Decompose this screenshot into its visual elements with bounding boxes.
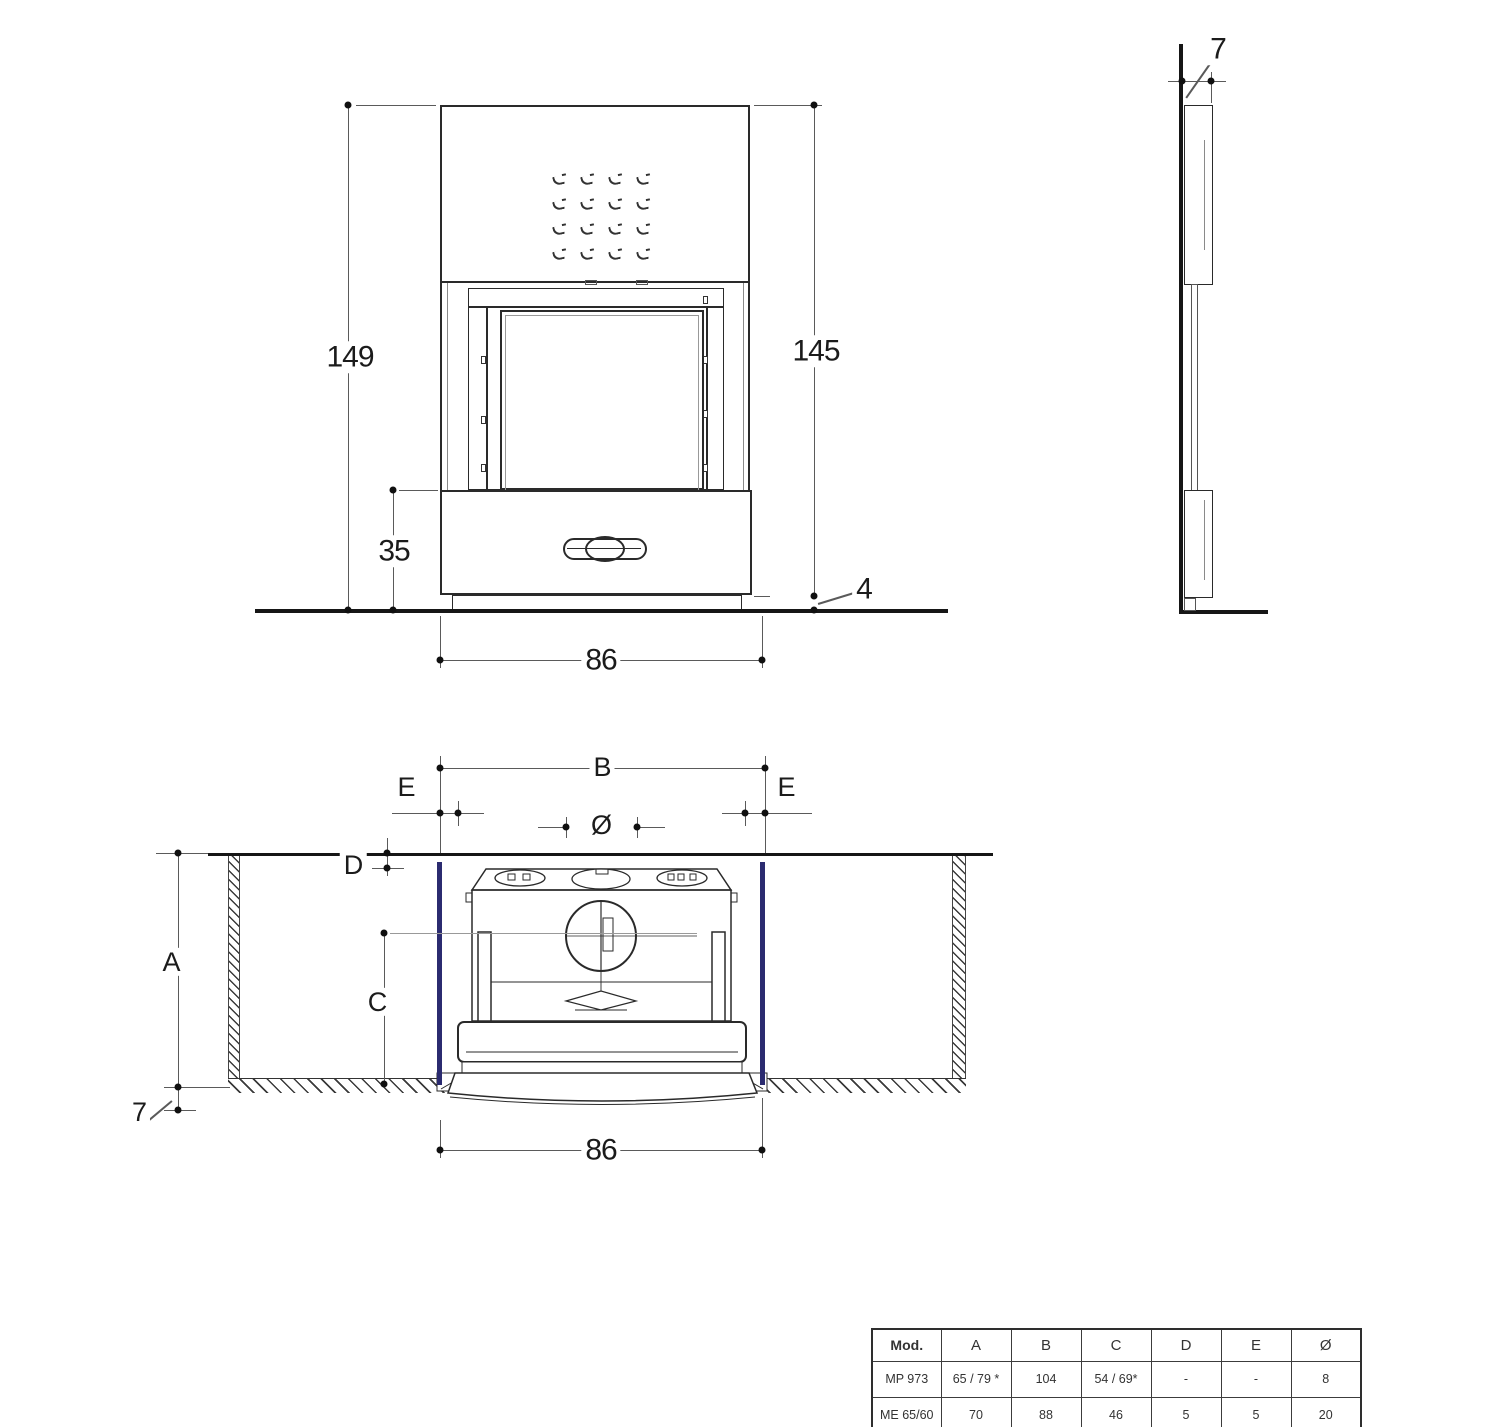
dim-145-ext-bottom: [754, 596, 770, 597]
spec-value-cell: 20: [1291, 1397, 1361, 1427]
hinge-mark: [481, 416, 486, 424]
dim-endpoint: [384, 865, 391, 872]
dim-endpoint: [563, 824, 570, 831]
top-vent-left: [495, 870, 545, 886]
spec-value-cell: 5: [1151, 1397, 1221, 1427]
vent-slot-icon: [636, 175, 649, 186]
side-upper-panel-inner: [1204, 140, 1205, 250]
dim-E-right-label: E: [773, 773, 798, 801]
dim-A-label: A: [158, 948, 183, 976]
spec-value-cell: -: [1151, 1361, 1221, 1397]
base-band: [458, 1022, 746, 1062]
dim-B-label: B: [589, 753, 614, 781]
spec-value-cell: 70: [941, 1397, 1011, 1427]
handle-knob: [585, 536, 625, 562]
dim-endpoint: [811, 593, 818, 600]
hinge-mark: [703, 296, 708, 304]
spec-value-cell: 65 / 79 *: [941, 1361, 1011, 1397]
dim-E-left-label: E: [393, 773, 418, 801]
vent-slot-icon: [580, 200, 593, 211]
spec-table-header-cell: A: [941, 1329, 1011, 1361]
dim-base-height-label: 35: [374, 535, 413, 567]
dim-diameter-label: Ø: [587, 811, 615, 839]
spec-table-header-cell: D: [1151, 1329, 1221, 1361]
dim-149-ext: [356, 105, 436, 106]
dim-35-ext: [399, 490, 438, 491]
dim-depth-label: 7: [1206, 33, 1230, 65]
wall-top-line: [208, 853, 993, 856]
flue-collar: [572, 869, 630, 889]
vent-slot-icon: [636, 250, 649, 261]
spec-table: Mod.ABCDEØ MP 97365 / 79 *10454 / 69*--8…: [871, 1328, 1362, 1427]
dim-endpoint: [1179, 78, 1186, 85]
dim-endpoint: [634, 824, 641, 831]
niche-marker-left: [437, 862, 442, 1085]
spec-value-cell: 5: [1221, 1397, 1291, 1427]
fireplace-technical-drawing: 149 35 145 4 86: [0, 0, 1500, 1427]
spec-table-header-cell: B: [1011, 1329, 1081, 1361]
vent-slot-icon: [636, 225, 649, 236]
body-side-right-inner: [743, 283, 744, 490]
dim-body-height-label: 145: [788, 335, 843, 367]
side-foot: [1184, 598, 1196, 611]
door-column-right: [706, 306, 708, 490]
top-vent-right: [657, 870, 707, 886]
vent-slot-icon: [608, 250, 621, 261]
door-frame-top-band: [468, 306, 724, 308]
spec-table-header-cell: C: [1081, 1329, 1151, 1361]
rail-right: [712, 932, 725, 1021]
vent-slot-icon: [580, 175, 593, 186]
handle-axis: [567, 548, 641, 549]
pedestal-skirt: [448, 1073, 757, 1101]
rail-left: [478, 932, 491, 1021]
dim-endpoint: [759, 657, 766, 664]
vent-slot-icon: [636, 200, 649, 211]
side-connector: [1191, 284, 1198, 491]
vent-slot-icon: [580, 250, 593, 261]
pedestal-band: [462, 1062, 742, 1073]
dim-floor-drop-label: 7: [128, 1098, 150, 1126]
spec-table-header-cell: Ø: [1291, 1329, 1361, 1361]
body-side-left-inner: [447, 283, 448, 490]
hinge-mark: [481, 356, 486, 364]
spec-model-cell: ME 65/60: [872, 1397, 941, 1427]
dim-endpoint: [811, 607, 818, 614]
spec-table-body: MP 97365 / 79 *10454 / 69*--8ME 65/60708…: [872, 1361, 1361, 1427]
dim-diam-line-right: [637, 827, 665, 828]
dim-overall-height-label: 149: [322, 341, 377, 373]
dim-endpoint: [742, 810, 749, 817]
vent-slot-icon: [608, 175, 621, 186]
dim-endpoint: [437, 765, 444, 772]
glass-inner-line: [505, 315, 699, 490]
vent-slot-icon: [552, 175, 565, 186]
dim-floor-gap-label: 4: [852, 573, 876, 605]
dim-endpoint: [381, 930, 388, 937]
side-lower-panel: [1184, 490, 1213, 598]
dim-D-label: D: [340, 851, 367, 879]
side-tab: [731, 893, 737, 902]
vent-grid: [553, 176, 663, 271]
body-side-right: [748, 283, 750, 490]
vent-slot-icon: [608, 200, 621, 211]
vent-slot-icon: [552, 225, 565, 236]
dim-width-label: 86: [581, 644, 620, 676]
hood-mark-right: [636, 280, 648, 285]
dim-insert-width-label: 86: [581, 1134, 620, 1166]
dim-endpoint: [381, 1081, 388, 1088]
spec-value-cell: 8: [1291, 1361, 1361, 1397]
dim-4-leader: [818, 592, 855, 605]
plinth: [452, 595, 742, 610]
dim-endpoint: [345, 607, 352, 614]
vent-slot-icon: [580, 225, 593, 236]
dim-endpoint: [437, 1147, 444, 1154]
spec-value-cell: 46: [1081, 1397, 1151, 1427]
vent-slot-icon: [608, 225, 621, 236]
spec-value-cell: 104: [1011, 1361, 1081, 1397]
body-side-left: [440, 283, 442, 490]
dim-C-ref-line: [390, 933, 697, 934]
side-upper-panel: [1184, 105, 1213, 285]
dim-endpoint: [390, 607, 397, 614]
hood-mark-left: [585, 280, 597, 285]
niche-left-wall: [228, 853, 240, 1078]
vent-slot-icon: [552, 200, 565, 211]
dim-endpoint: [1208, 78, 1215, 85]
spec-model-cell: MP 973: [872, 1361, 941, 1397]
niche-right-wall: [952, 853, 966, 1078]
dim-endpoint: [175, 1084, 182, 1091]
side-tab: [466, 893, 472, 902]
dim-endpoint: [762, 765, 769, 772]
spec-value-cell: 54 / 69*: [1081, 1361, 1151, 1397]
dim-C-label: C: [364, 988, 391, 1016]
floor-line: [255, 609, 948, 613]
dim-endpoint: [175, 1107, 182, 1114]
dim-endpoint: [759, 1147, 766, 1154]
dim-A-ext-top: [156, 853, 208, 854]
wall-line: [1179, 44, 1183, 613]
spec-table-head: Mod.ABCDEØ: [872, 1329, 1361, 1361]
spec-table-row: ME 65/607088465520: [872, 1397, 1361, 1427]
dim-endpoint: [384, 850, 391, 857]
spec-table-row: MP 97365 / 79 *10454 / 69*--8: [872, 1361, 1361, 1397]
dim-A-line: [178, 853, 179, 1110]
dim-endpoint: [811, 102, 818, 109]
niche-marker-right: [760, 862, 765, 1085]
spec-table-header-cell: E: [1221, 1329, 1291, 1361]
dim-endpoint: [455, 810, 462, 817]
dim-endpoint: [390, 487, 397, 494]
dim-endpoint: [437, 657, 444, 664]
dim-endpoint: [345, 102, 352, 109]
spec-table-header-cell: Mod.: [872, 1329, 941, 1361]
dim-endpoint: [762, 810, 769, 817]
side-lower-panel-inner: [1204, 500, 1205, 580]
dim-endpoint: [175, 850, 182, 857]
dim-endpoint: [437, 810, 444, 817]
spec-value-cell: -: [1221, 1361, 1291, 1397]
spec-value-cell: 88: [1011, 1397, 1081, 1427]
door-column-left: [486, 306, 488, 490]
vent-slot-icon: [552, 250, 565, 261]
hinge-mark: [481, 464, 486, 472]
insert-section-drawing: [432, 858, 772, 1113]
